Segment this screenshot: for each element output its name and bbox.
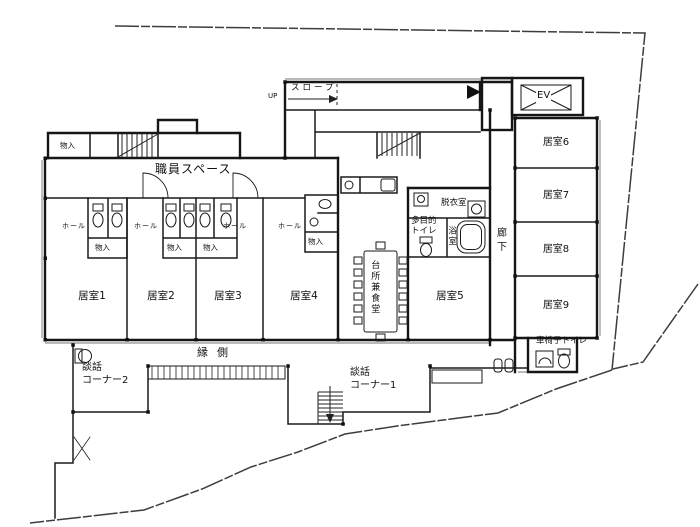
chat-corner-1-line1: 談話 bbox=[350, 366, 396, 379]
chat-corner-2-line1: 談話 bbox=[82, 361, 128, 374]
window-lines bbox=[42, 79, 600, 372]
hall-label-4: ホール bbox=[278, 222, 302, 231]
wheelchair-toilet-label: 車椅子トイレ bbox=[536, 336, 587, 347]
dressing-room-label: 脱衣室 bbox=[441, 198, 467, 209]
site-boundary-bottom bbox=[30, 370, 612, 523]
kitchen-dining-label: 台所兼食堂 bbox=[368, 260, 379, 332]
stairs-center bbox=[378, 133, 420, 156]
storage-label-4: 物入 bbox=[203, 243, 218, 252]
room-9-label: 居室9 bbox=[534, 300, 578, 313]
stairs-top-left bbox=[118, 134, 158, 157]
room-4-label: 居室4 bbox=[284, 290, 324, 303]
room-6-label: 居室6 bbox=[534, 137, 578, 150]
storage-label-1: 物入 bbox=[60, 141, 75, 150]
multipurpose-toilet-line2: トイレ bbox=[411, 226, 437, 236]
room-3-label: 居室3 bbox=[208, 290, 248, 303]
site-boundary-spur bbox=[613, 284, 698, 369]
hall-label-2: ホール bbox=[134, 222, 158, 231]
multipurpose-toilet-line1: 多目的 bbox=[411, 216, 437, 226]
storage-label-2: 物入 bbox=[95, 243, 110, 252]
exterior-walls bbox=[45, 78, 597, 372]
deck-hatching bbox=[152, 366, 278, 379]
corridor-label: 廊下 bbox=[493, 227, 506, 259]
slope-label: スロープ bbox=[291, 83, 337, 94]
room-2-label: 居室2 bbox=[141, 290, 181, 303]
chat-corner-1-label: 談話 コーナー1 bbox=[350, 366, 396, 392]
room-5-label: 居室5 bbox=[428, 290, 472, 303]
elevator-label: EV bbox=[536, 90, 551, 103]
room-7-label: 居室7 bbox=[534, 190, 578, 203]
chat-corner-2-line2: コーナー2 bbox=[82, 374, 128, 387]
up-label: UP bbox=[268, 92, 277, 101]
storage-label-3: 物入 bbox=[167, 243, 182, 252]
chat-corner-1-line2: コーナー1 bbox=[350, 379, 396, 392]
bath-label: 浴室 bbox=[446, 226, 457, 256]
hall-label-3: ホール bbox=[223, 222, 247, 231]
storage-label-5: 物入 bbox=[308, 237, 323, 246]
veranda-label: 縁側 bbox=[197, 346, 237, 360]
staff-space-label: 職員スペース bbox=[155, 162, 232, 177]
floor-plan-page: UP スロープ EV 職員スペース 居室1 居室2 居室3 居室4 居室5 居室… bbox=[0, 0, 700, 527]
hall-label-1: ホール bbox=[62, 222, 86, 231]
chat-corner-2-label: 談話 コーナー2 bbox=[82, 361, 128, 387]
room-1-label: 居室1 bbox=[72, 290, 112, 303]
steps-down-arrowhead bbox=[326, 414, 334, 423]
floor-plan-drawing bbox=[0, 0, 700, 527]
room-8-label: 居室8 bbox=[534, 244, 578, 257]
multipurpose-toilet-label: 多目的 トイレ bbox=[411, 216, 437, 236]
